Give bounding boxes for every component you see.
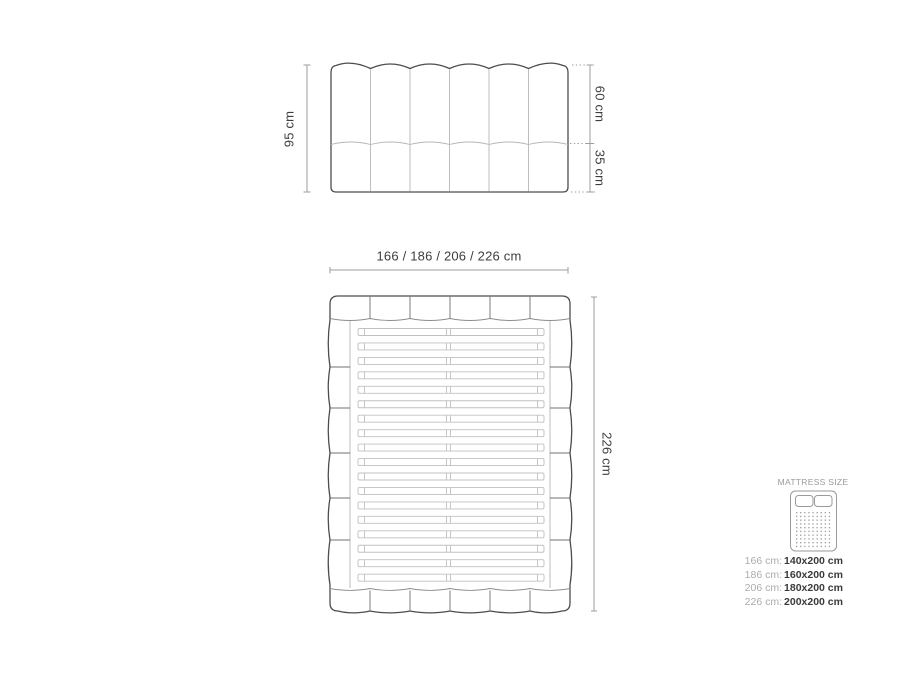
mattress-size-list: 166 cm:140x200 cm 186 cm:160x200 cm 206 … bbox=[700, 555, 843, 609]
mattress-size-value: 200x200 cm bbox=[784, 596, 843, 608]
pillow-right-icon bbox=[815, 496, 833, 507]
mattress-size-row: 226 cm:200x200 cm bbox=[700, 596, 843, 610]
mattress-size-value: 180x200 cm bbox=[784, 582, 843, 594]
bed-plan-view bbox=[328, 296, 572, 613]
mattress-size-value: 160x200 cm bbox=[784, 569, 843, 581]
mattress-dots-texture bbox=[796, 512, 832, 549]
dimension-line-width bbox=[330, 267, 568, 274]
pillow-left-icon bbox=[796, 496, 814, 507]
mattress-size-row: 166 cm:140x200 cm bbox=[700, 555, 843, 569]
mattress-icon bbox=[791, 491, 837, 551]
mattress-size-value: 140x200 cm bbox=[784, 555, 843, 567]
frame-width-label: 166 cm: bbox=[745, 555, 782, 567]
mattress-size-row: 206 cm:180x200 cm bbox=[700, 582, 843, 596]
bed-length-label: 226 cm bbox=[600, 432, 615, 476]
mattress-size-row: 186 cm:160x200 cm bbox=[700, 569, 843, 583]
dimension-line-60-35cm bbox=[570, 65, 595, 192]
mattress-size-title: MATTRESS SIZE bbox=[778, 477, 849, 487]
headboard-front-view bbox=[331, 63, 568, 192]
frame-width-label: 206 cm: bbox=[745, 582, 782, 594]
dimension-line-226cm bbox=[591, 297, 597, 611]
dimension-line-95cm bbox=[304, 65, 311, 192]
frame-width-label: 226 cm: bbox=[745, 596, 782, 608]
headboard-upper-label: 60 cm bbox=[593, 86, 608, 122]
bed-widths-label: 166 / 186 / 206 / 226 cm bbox=[376, 249, 521, 264]
headboard-lower-label: 35 cm bbox=[593, 149, 608, 185]
frame-width-label: 186 cm: bbox=[745, 569, 782, 581]
bed-dimension-diagram: 95 cm 60 cm 35 cm 166 / 186 / 206 / 226 … bbox=[0, 0, 900, 675]
headboard-height-label: 95 cm bbox=[282, 110, 297, 146]
